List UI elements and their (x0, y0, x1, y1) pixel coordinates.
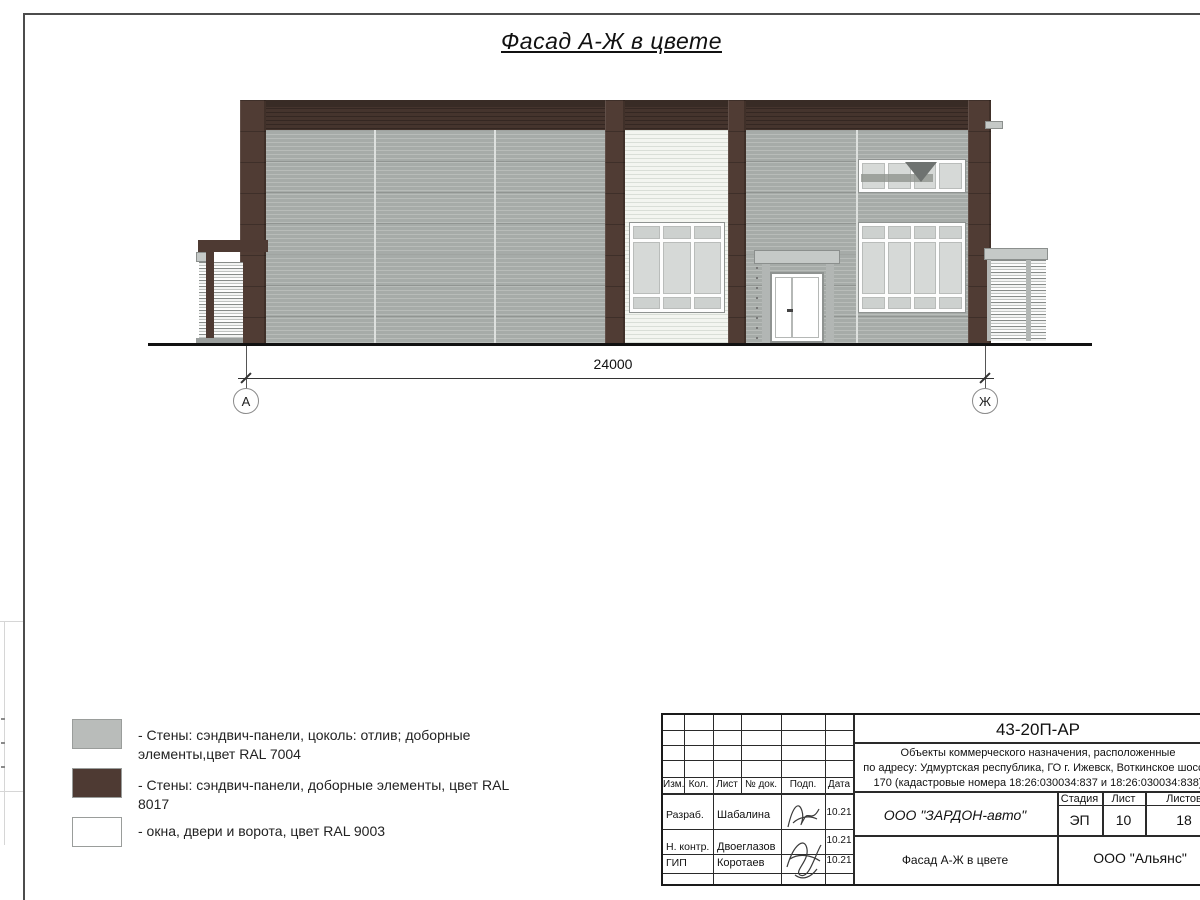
col-header-data: Дата (825, 779, 853, 790)
dimension-label: 24000 (563, 356, 663, 372)
col-header-izm: Изм. (663, 779, 684, 790)
entrance-door (770, 272, 824, 343)
entrance-canopy (754, 250, 840, 264)
drawing-sheet: Фасад А-Ж в цвете (0, 0, 1200, 900)
left-margin-mark (1, 766, 5, 768)
col-header-kol: Кол. (684, 779, 713, 790)
sheets-value: 18 (1145, 812, 1200, 828)
stage-header: Стадия (1057, 793, 1102, 805)
legend-label: - Стены: сэндвич-панели, цоколь: отлив; … (138, 726, 538, 764)
flashing-right (985, 121, 1003, 129)
drawing-name: Фасад А-Ж в цвете (853, 853, 1057, 867)
pergola-right-post (987, 260, 991, 341)
window-center (629, 222, 725, 313)
extension-line-left (246, 346, 247, 391)
legend-swatch-gray (72, 719, 122, 749)
col-header-list: Лист (713, 779, 741, 790)
pergola-right-louvers (987, 260, 1046, 341)
axis-circle-a: А (233, 388, 259, 414)
sheet-frame-top (23, 13, 1200, 15)
row-date: 10.21 (825, 855, 853, 866)
page-title: Фасад А-Ж в цвете (23, 28, 1200, 55)
legend-swatch-brown (72, 768, 122, 798)
row-role: Разраб. (666, 809, 712, 821)
row-name: Двоеглазов (717, 841, 781, 853)
pergola-left-post (206, 252, 214, 341)
stage-value: ЭП (1057, 812, 1102, 828)
column-mid-right (728, 100, 746, 343)
row-role: Н. контр. (666, 841, 714, 853)
door-jamb-right (826, 264, 834, 343)
title-block: Изм. Кол. Лист № док. Подп. Дата Разраб.… (661, 713, 1200, 886)
left-margin-line (4, 621, 5, 845)
row-date: 10.21 (825, 807, 853, 818)
panel-joint (494, 130, 496, 343)
downspout-marks (756, 267, 758, 341)
row-date: 10.21 (825, 835, 853, 846)
column-left (240, 100, 266, 343)
extension-line-right (985, 346, 986, 391)
sheet-frame-left (23, 13, 25, 900)
column-mid-left (605, 100, 625, 343)
ground-line (148, 343, 1092, 346)
legend-label: - окна, двери и ворота, цвет RAL 9003 (138, 822, 538, 841)
description-line: 170 (кадастровые номера 18:26:030034:837… (858, 776, 1200, 791)
axis-circle-zh: Ж (972, 388, 998, 414)
doc-number: 43-20П-АР (853, 720, 1200, 740)
wall-section-left (266, 130, 605, 343)
col-header-ndok: № док. (741, 779, 781, 790)
legend-label: - Стены: сэндвич-панели, доборные элемен… (138, 776, 538, 814)
row-role: ГИП (666, 857, 712, 869)
client-name: ООО "ЗАРДОН-авто" (853, 807, 1057, 823)
pergola-right-post (1026, 260, 1031, 341)
left-margin-mark (1, 718, 5, 720)
sheet-header: Лист (1102, 793, 1145, 805)
row-name: Коротаев (717, 857, 781, 869)
left-margin-mark (1, 742, 5, 744)
sheets-header: Листов (1145, 793, 1200, 805)
company-name: ООО "Альянс" (1057, 850, 1200, 866)
door-handle (787, 309, 793, 312)
signature-marks (781, 795, 825, 884)
main-window-right (858, 222, 966, 313)
legend-swatch-white (72, 817, 122, 847)
description-line: Объекты коммерческого назначения, распол… (858, 746, 1200, 761)
door-jamb-left (762, 264, 770, 343)
row-name: Шабалина (717, 809, 781, 821)
col-header-podp: Подп. (781, 779, 825, 790)
sheet-value: 10 (1102, 812, 1145, 828)
dimension-line (238, 378, 994, 379)
project-description: Объекты коммерческого назначения, распол… (858, 746, 1200, 791)
pergola-right-cap (984, 248, 1048, 260)
pergola-left-beam (198, 240, 268, 252)
description-line: по адресу: Удмуртская республика, ГО г. … (858, 761, 1200, 776)
panel-joint (374, 130, 376, 343)
